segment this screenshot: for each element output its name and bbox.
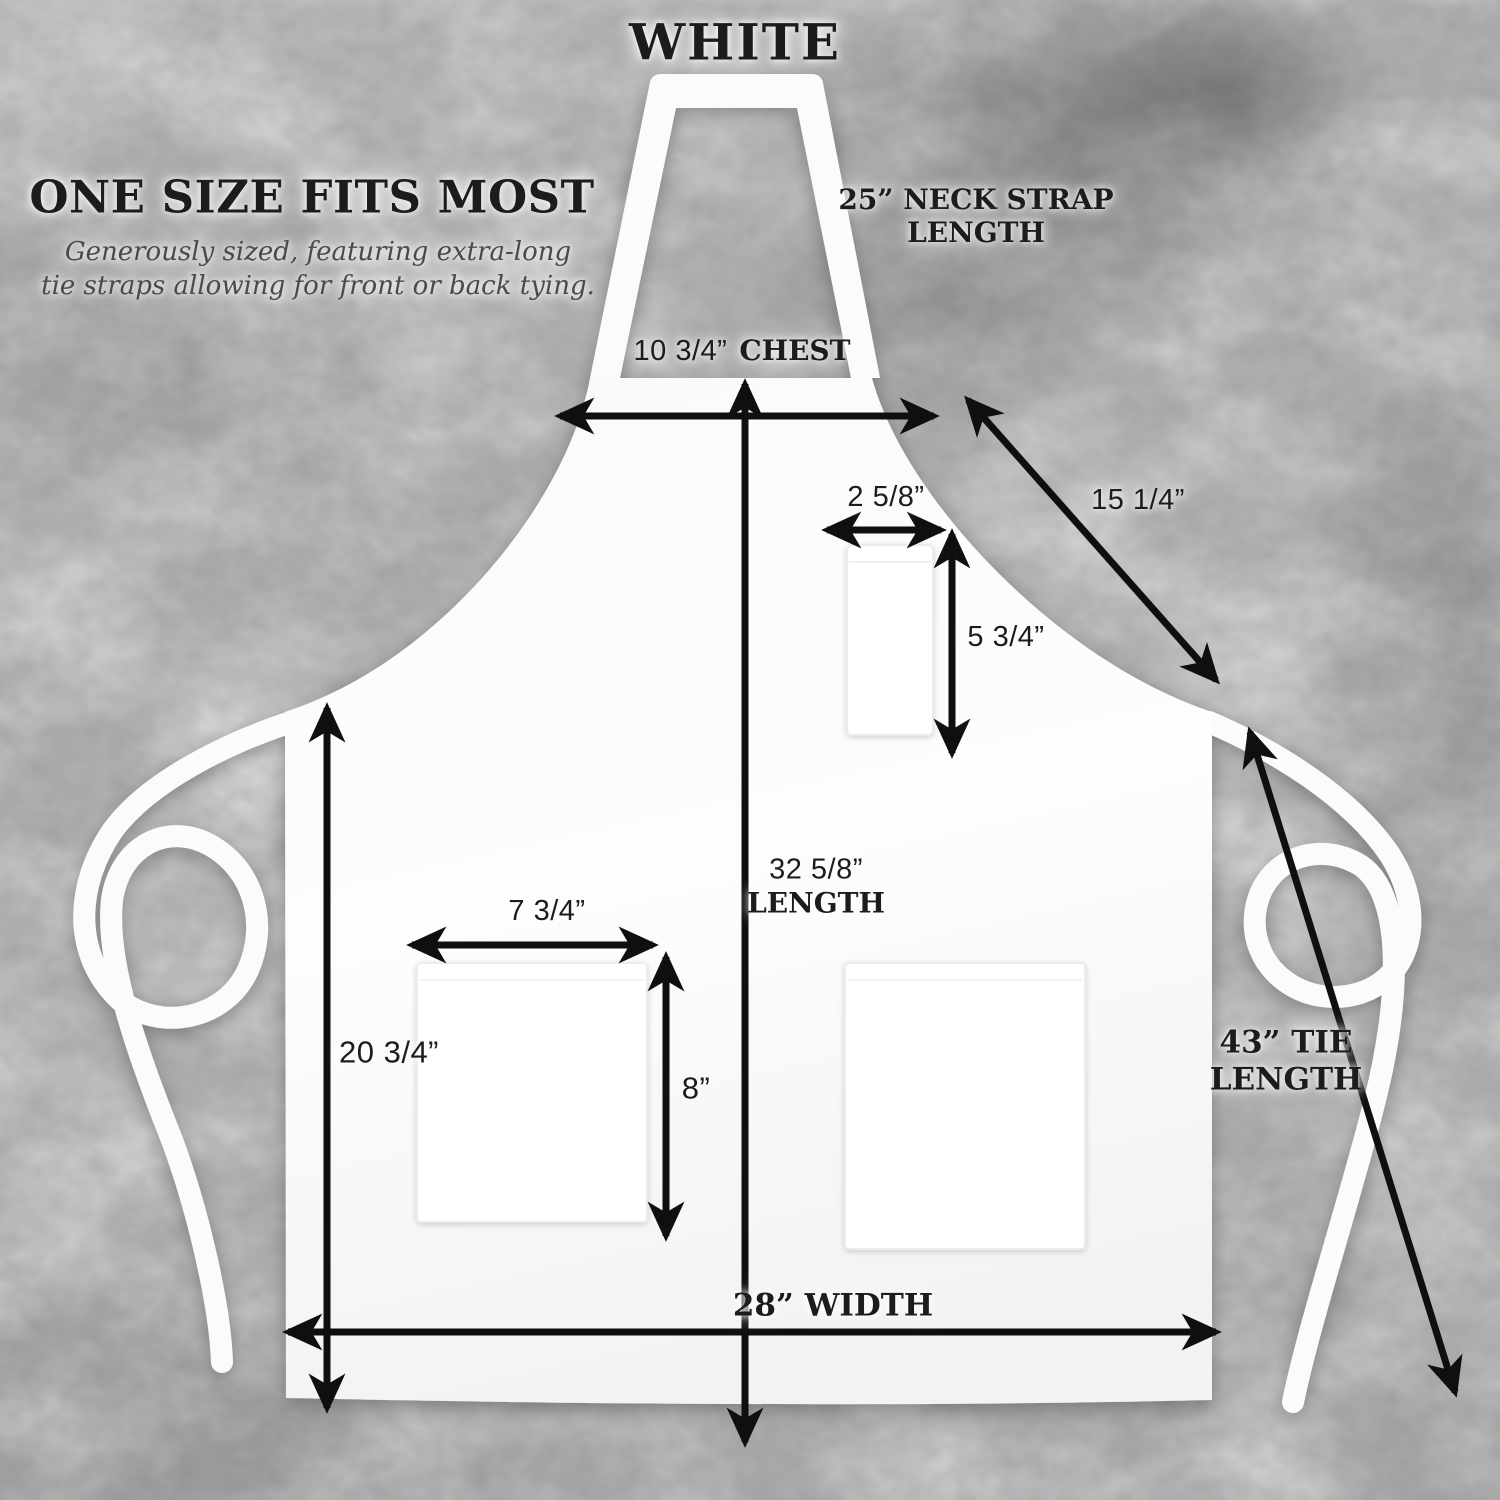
waist-pocket-height-label: 8”	[682, 1071, 711, 1108]
neck-strap-length-label: 25” NECK STRAP LENGTH	[838, 183, 1113, 249]
left-waist-pocket	[417, 963, 647, 1222]
waist-pocket-width-label: 7 3/4”	[508, 894, 585, 928]
apron-size-diagram: WHITE ONE SIZE FITS MOST Generously size…	[0, 0, 1500, 1500]
tie-length-label: 43” TIE LENGTH	[1210, 1024, 1363, 1097]
chest-pocket-width-label: 2 5/8”	[847, 480, 924, 514]
color-name-title: WHITE	[629, 13, 841, 72]
neck-strap	[590, 74, 880, 378]
side-length-label: 20 3/4”	[339, 1035, 439, 1072]
chest-pocket	[847, 545, 933, 735]
width-measurement-label: 28” WIDTH	[733, 1288, 933, 1325]
chest-measurement-label: 10 3/4” CHEST	[634, 334, 851, 368]
chest-word: CHEST	[739, 334, 850, 367]
neck-strap-diagonal-label: 15 1/4”	[1091, 483, 1185, 517]
right-waist-pocket	[845, 963, 1085, 1249]
fit-subtitle: Generously sized, featuring extra-long t…	[41, 236, 595, 304]
length-word: LENGTH	[747, 887, 885, 920]
length-measurement-label: 32 5/8” LENGTH	[747, 852, 885, 919]
left-tie-strap	[84, 722, 291, 1362]
chest-value: 10 3/4”	[634, 334, 728, 368]
fit-heading: ONE SIZE FITS MOST	[29, 170, 594, 223]
chest-pocket-height-label: 5 3/4”	[967, 620, 1044, 654]
length-value: 32 5/8”	[769, 852, 863, 886]
diagram-graphics	[0, 0, 1500, 1500]
